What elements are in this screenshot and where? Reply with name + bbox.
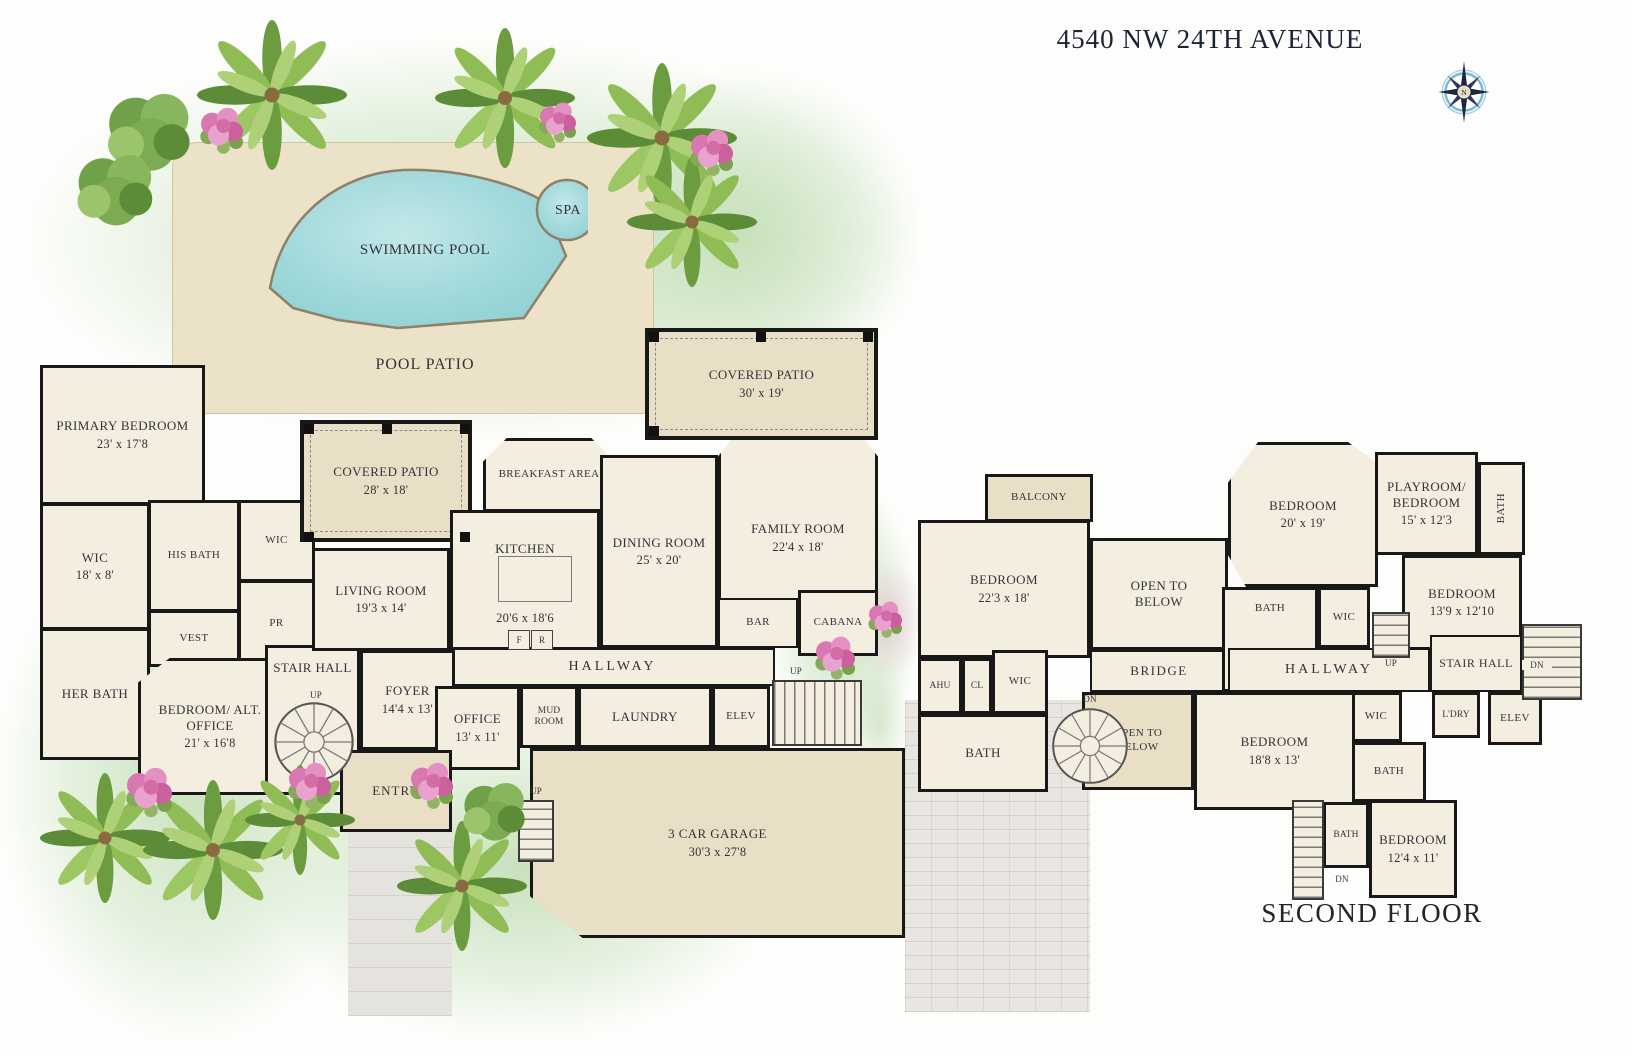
room-label: BEDROOM [1379,832,1447,848]
room-label: HALLWAY [569,658,657,676]
flower-icon [275,748,345,818]
room-wic-sf-left: WIC [992,650,1048,714]
room-label: BATH [1333,830,1358,841]
room-label: BEDROOM [1428,586,1496,602]
room-label: HIS BATH [168,549,220,563]
room-dims: 22'3 x 18' [978,591,1029,606]
flower-icon [112,752,187,827]
staircase-dn-bottom [1292,800,1324,900]
room-her-bath: HER BATH [40,628,150,760]
room-label: PR [269,617,283,631]
room-label: ELEV [1500,712,1530,726]
compass-icon [1432,58,1496,126]
room-bedroom-20: BEDROOM 20' x 19' [1228,442,1378,587]
room-label: VEST [179,632,208,646]
room-bedroom-22: BEDROOM 22'3 x 18' [918,520,1090,658]
flower-icon [528,90,588,150]
room-balcony: BALCONY [985,474,1093,522]
room-label: BATH [1374,765,1404,779]
room-dims: 20' x 19' [1281,516,1326,531]
covered-patio-28: COVERED PATIO 28' x 18' [300,420,472,542]
room-dims: 13'9 x 12'10 [1430,604,1494,619]
room-label: BEDROOM [1241,734,1309,750]
room-bath-vertical: BATH [1478,462,1525,555]
room-label: PRIMARY BEDROOM [56,418,188,434]
room-label: BAR [746,616,770,630]
patio-column [649,332,659,342]
dn-label: DN [1070,694,1110,704]
room-dims: 15' x 12'3 [1401,513,1452,528]
room-label: COVERED PATIO [709,367,814,383]
room-label: OPEN TO BELOW [1114,578,1204,611]
room-label: HER BATH [62,686,128,702]
room-garage: 3 CAR GARAGE 30'3 x 27'8 [530,748,905,938]
room-label: BATH [965,745,1001,761]
room-label: FAMILY ROOM [751,521,845,537]
room-bedroom-18: BEDROOM 18'8 x 13' [1194,692,1355,810]
page-title: 4540 NW 24TH AVENUE [1020,24,1400,55]
flower-icon [858,590,913,645]
room-mud-room: MUD ROOM [520,686,578,748]
room-label: LAUNDRY [612,709,678,725]
room-bar: BAR [718,598,798,648]
room-bath-small: BATH [1323,802,1369,868]
up-label: UP [1372,658,1410,668]
pool-patio-label: POOL PATIO [340,356,510,374]
bush-icon [61,133,171,243]
second-floor-label: SECOND FLOOR [1222,898,1522,929]
dn-label: DN [1324,874,1360,884]
room-label: HALLWAY [1285,661,1373,679]
range-label: R [539,635,545,645]
dn-label: DN [1522,660,1552,670]
room-label: BALCONY [1011,491,1067,505]
room-closet: CL [962,658,992,714]
room-dims: 18' x 8' [76,568,114,583]
room-bath-mid: BATH [1352,742,1426,802]
room-dims: 13' x 11' [455,730,499,745]
room-label: WIC [265,534,288,548]
room-label: BRIDGE [1130,663,1187,679]
room-label: MUD ROOM [525,706,573,728]
room-label: ELEV [726,710,756,724]
room-dining-room: DINING ROOM 25' x 20' [600,455,718,648]
room-his-bath: HIS BATH [148,500,240,612]
room-label: BATH [1255,602,1285,616]
room-laundry-sf: L'DRY [1432,692,1480,738]
room-label: LIVING ROOM [335,583,426,599]
flower-icon [397,748,467,818]
spiral-staircase-icon [1050,706,1130,786]
room-label: BEDROOM [1269,498,1337,514]
room-dims: 25' x 20' [637,553,682,568]
room-dims: 12'4 x 11' [1388,851,1439,866]
flower-icon [187,93,257,163]
room-bath-sf-left: BATH [918,714,1048,792]
fridge-label: F [516,635,521,645]
room-laundry: LAUNDRY [578,686,712,748]
flower-icon [677,115,747,185]
range-box: R [531,630,553,650]
room-dims: 20'6 x 18'6 [496,611,554,626]
room-wic-primary: WIC 18' x 8' [40,503,150,630]
room-wic-center: WIC [1318,587,1370,648]
room-dims: 28' x 18' [364,483,409,498]
fridge-box: F [508,630,530,650]
room-label: L'DRY [1442,710,1470,721]
room-ahu: AHU [918,658,962,714]
room-label: WIC [1333,611,1356,625]
room-open-to-below: OPEN TO BELOW [1090,538,1228,650]
covered-patio-30: COVERED PATIO 30' x 19' [645,328,878,440]
room-label: AHU [930,681,951,692]
room-label: STAIR HALL [1439,656,1513,671]
floor-plan-canvas: N 4540 NW 24TH AVENUE SWIMMING POOL SPA … [0,0,1632,1056]
room-dims: 22'4 x 18' [772,540,823,555]
room-label: COVERED PATIO [333,464,438,480]
room-label: WIC [1365,710,1388,724]
room-dims: 19'3 x 14' [355,601,406,616]
room-dims: 21' x 16'8 [184,736,235,751]
room-bridge: BRIDGE [1090,650,1228,692]
room-label: STAIR HALL [273,660,351,676]
room-label: KITCHEN [495,541,555,557]
room-stair-hall-sf: STAIR HALL [1430,635,1522,692]
room-dims: 30'3 x 27'8 [689,845,747,860]
patio-column [304,424,314,434]
room-wic-18: WIC [1350,692,1402,742]
room-label: CL [971,681,983,692]
staircase-up [772,680,862,746]
room-dims: 14'4 x 13' [382,702,433,717]
room-label: FOYER [385,683,430,699]
room-label: BREAKFAST AREA [499,468,600,482]
kitchen-island [498,556,572,602]
room-living-room: LIVING ROOM 19'3 x 14' [312,548,450,651]
room-label: WIC [82,550,108,566]
room-hallway: HALLWAY [450,648,775,686]
staircase-up-sf [1372,612,1410,658]
pool-label: SWIMMING POOL [340,242,510,259]
room-label: BATH [1495,493,1509,523]
room-dims: 23' x 17'8 [97,437,148,452]
room-primary-bedroom: PRIMARY BEDROOM 23' x 17'8 [40,365,205,505]
room-label: 3 CAR GARAGE [668,826,767,842]
room-breakfast-area: BREAKFAST AREA [483,438,615,512]
room-bedroom-12: BEDROOM 12'4 x 11' [1369,800,1457,898]
room-label: OFFICE [454,711,501,727]
room-playroom-bedroom: PLAYROOM/ BEDROOM 15' x 12'3 [1375,452,1478,555]
room-dims: 18'8 x 13' [1249,753,1300,768]
room-label: BEDROOM [970,572,1038,588]
room-label: DINING ROOM [613,535,706,551]
room-label: PLAYROOM/ BEDROOM [1381,479,1473,512]
room-dims: 30' x 19' [739,386,784,401]
room-label: BEDROOM/ ALT. OFFICE [143,702,277,735]
room-elevator: ELEV [712,686,770,748]
room-label: WIC [1009,675,1032,689]
up-label: UP [296,690,336,700]
